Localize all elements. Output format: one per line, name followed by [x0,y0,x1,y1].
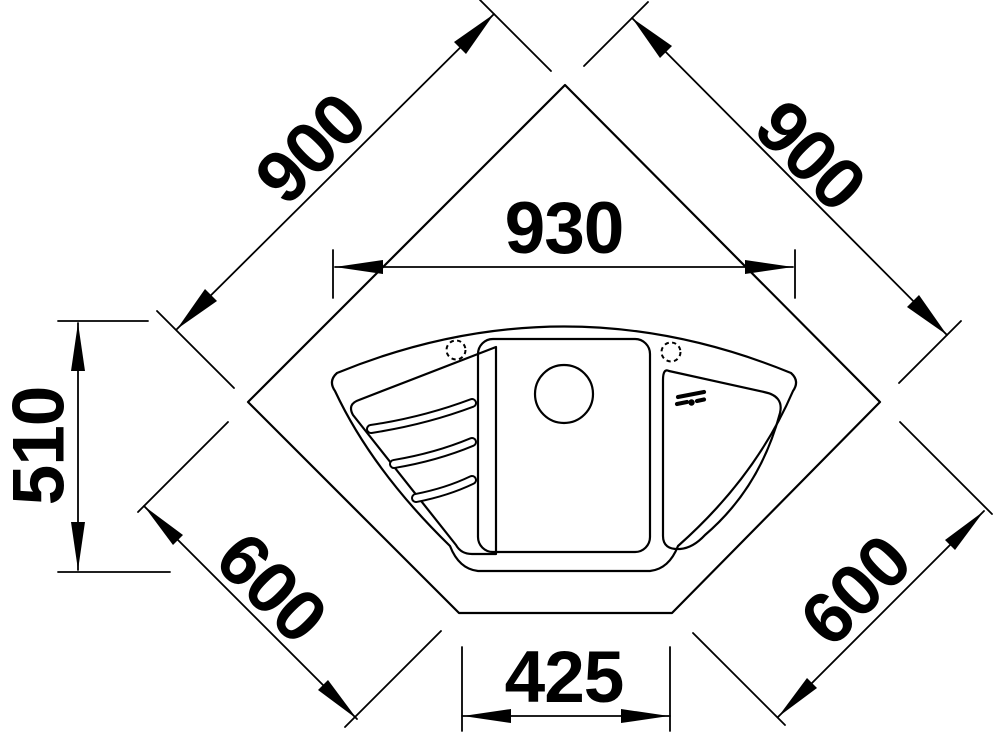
extension-line [899,321,961,383]
dimension-label: 425 [505,637,624,718]
overflow-bar [678,392,704,397]
drainboard-grooves [371,403,472,498]
extension-line [480,0,551,71]
extension-line [345,631,441,727]
dimension-425-front: 425 [462,637,670,731]
arrowhead [144,506,183,545]
dimension-510-depth: 510 [0,321,170,572]
dimension-label: 600 [201,517,342,658]
dimension-label: 930 [505,188,624,269]
dimension-600-bottom-right: 600 [693,422,992,725]
groove-highlight [394,442,472,464]
sink-technical-drawing: 900 900 930 510 600 [0,0,1000,741]
extension-line [138,422,228,512]
dimension-label: 900 [740,85,881,226]
sink-outer-rim [332,327,796,572]
dimension-label: 900 [240,78,381,219]
arrowhead [318,680,357,719]
dimension-label: 600 [785,520,926,661]
arrowhead [778,678,817,717]
dimension-930-width: 930 [333,188,795,298]
arrowhead [454,14,494,54]
arrowhead [177,289,217,329]
arrowhead [71,522,85,570]
extension-line [693,633,785,725]
main-bowl [478,339,650,552]
sink [332,327,796,572]
arrowhead [945,511,984,550]
drainboard [351,347,496,554]
drawing-canvas: 900 900 930 510 600 [0,0,1000,741]
overflow-bar [677,402,687,404]
arrowhead [907,295,947,335]
extension-line [584,2,648,66]
extension-line [900,422,992,514]
dimension-900-top-left: 900 [157,0,551,388]
tap-hole-right [662,343,681,362]
arrowhead [621,709,669,723]
groove-highlight [371,403,472,429]
arrowhead [335,260,383,274]
arrowhead [632,18,672,58]
arrowhead [745,260,793,274]
dimension-label: 510 [0,387,80,506]
dimension-900-top-right: 900 [584,2,961,383]
overflow-icon [677,392,704,406]
overflow-bar [697,400,704,402]
extension-line [157,311,234,388]
tap-hole-left [447,341,466,360]
arrowhead [71,323,85,371]
drain-hole [535,365,593,423]
overflow-dot [688,399,694,405]
